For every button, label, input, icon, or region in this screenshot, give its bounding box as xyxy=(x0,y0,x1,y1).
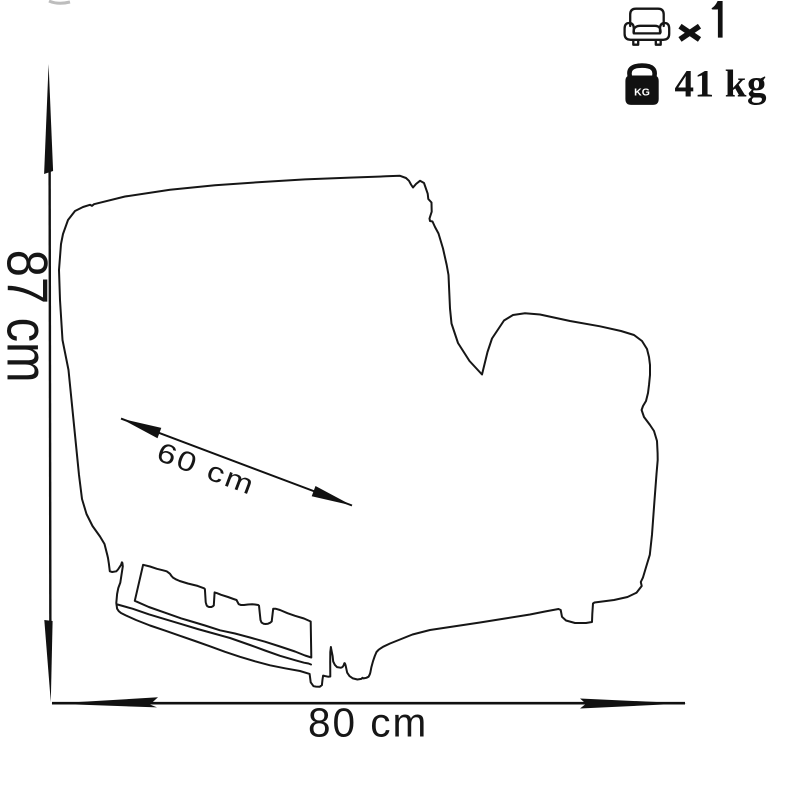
svg-text:80 cm: 80 cm xyxy=(308,699,428,745)
svg-text:KG: KG xyxy=(634,87,650,99)
svg-text:60 cm: 60 cm xyxy=(153,436,260,501)
svg-text:87 cm: 87 cm xyxy=(0,250,58,383)
svg-text:41 kg: 41 kg xyxy=(675,63,767,106)
